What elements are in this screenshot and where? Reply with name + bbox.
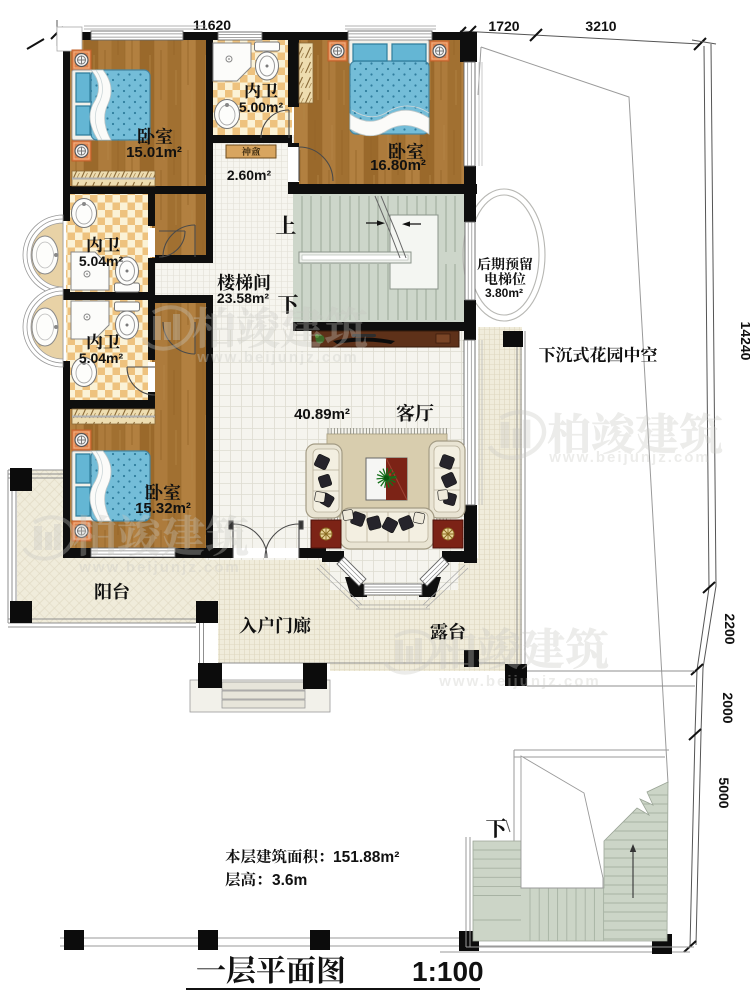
svg-text:www.beijunjz.com: www.beijunjz.com	[548, 449, 710, 466]
svg-text:1:100: 1:100	[412, 956, 484, 987]
svg-text:3.80m²: 3.80m²	[485, 286, 523, 300]
svg-text:www.beijunjz.com: www.beijunjz.com	[196, 349, 358, 366]
svg-text:2200: 2200	[722, 613, 738, 644]
svg-text:15.32m²: 15.32m²	[135, 500, 191, 517]
svg-text:1720: 1720	[488, 18, 519, 34]
svg-text:3210: 3210	[585, 18, 616, 34]
svg-text:3.6m: 3.6m	[272, 872, 307, 889]
svg-text:15.01m²: 15.01m²	[126, 144, 182, 161]
svg-text:40.89m²: 40.89m²	[294, 406, 350, 423]
svg-text:5.00m²: 5.00m²	[239, 99, 284, 115]
svg-text:2000: 2000	[720, 692, 736, 723]
svg-text:151.88m²: 151.88m²	[333, 849, 399, 866]
svg-text:23.58m²: 23.58m²	[217, 290, 269, 306]
svg-text:2.60m²: 2.60m²	[227, 167, 272, 183]
svg-text:www.beijunjz.com: www.beijunjz.com	[78, 559, 240, 576]
svg-text:5.04m²: 5.04m²	[79, 350, 124, 366]
svg-text:14240: 14240	[738, 322, 750, 361]
svg-text:www.beijunjz.com: www.beijunjz.com	[438, 673, 600, 690]
svg-text:5.04m²: 5.04m²	[79, 253, 124, 269]
svg-text:11620: 11620	[193, 17, 231, 33]
svg-text:5000: 5000	[716, 777, 732, 808]
svg-text:16.80m²: 16.80m²	[370, 157, 426, 174]
